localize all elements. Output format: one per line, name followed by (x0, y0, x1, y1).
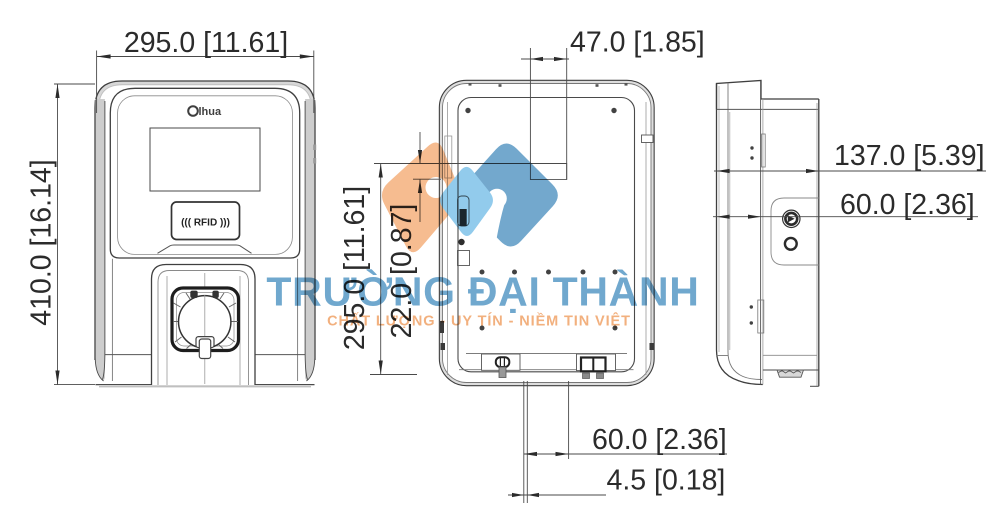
svg-text:295.0 [11.61]: 295.0 [11.61] (124, 27, 288, 59)
svg-text:TRƯỜNG ĐẠI THÀNH: TRƯỜNG ĐẠI THÀNH (266, 269, 699, 315)
svg-text:137.0 [5.39]: 137.0 [5.39] (834, 140, 985, 172)
svg-text:410.0 [16.14]: 410.0 [16.14] (26, 159, 58, 325)
svg-text:60.0 [2.36]: 60.0 [2.36] (840, 189, 975, 221)
svg-text:60.0 [2.36]: 60.0 [2.36] (592, 424, 727, 456)
svg-text:((( RFID ))): ((( RFID ))) (181, 218, 230, 229)
svg-text:47.0 [1.85]: 47.0 [1.85] (570, 27, 705, 59)
svg-text:4.5 [0.18]: 4.5 [0.18] (607, 465, 726, 497)
svg-text:CHẤT LƯỢNG - UY TÍN - NIỀM TIN: CHẤT LƯỢNG - UY TÍN - NIỀM TIN VIỆT (327, 312, 631, 330)
svg-text:lhua: lhua (199, 106, 222, 118)
